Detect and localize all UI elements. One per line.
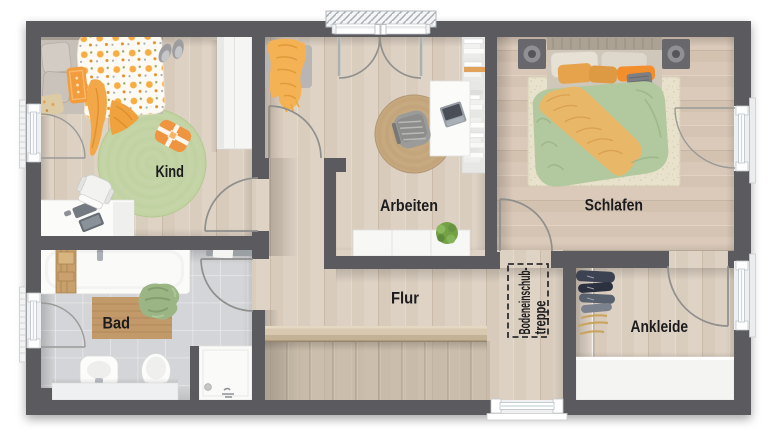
svg-text:treppe: treppe [533, 300, 550, 334]
svg-text:Kind: Kind [155, 162, 184, 181]
svg-text:Arbeiten: Arbeiten [380, 196, 438, 215]
svg-text:Bodeneinschub-: Bodeneinschub- [517, 268, 534, 335]
svg-text:Bad: Bad [103, 314, 131, 333]
svg-text:Schlafen: Schlafen [585, 196, 643, 215]
svg-text:Ankleide: Ankleide [631, 317, 689, 336]
svg-text:Flur: Flur [391, 289, 419, 308]
